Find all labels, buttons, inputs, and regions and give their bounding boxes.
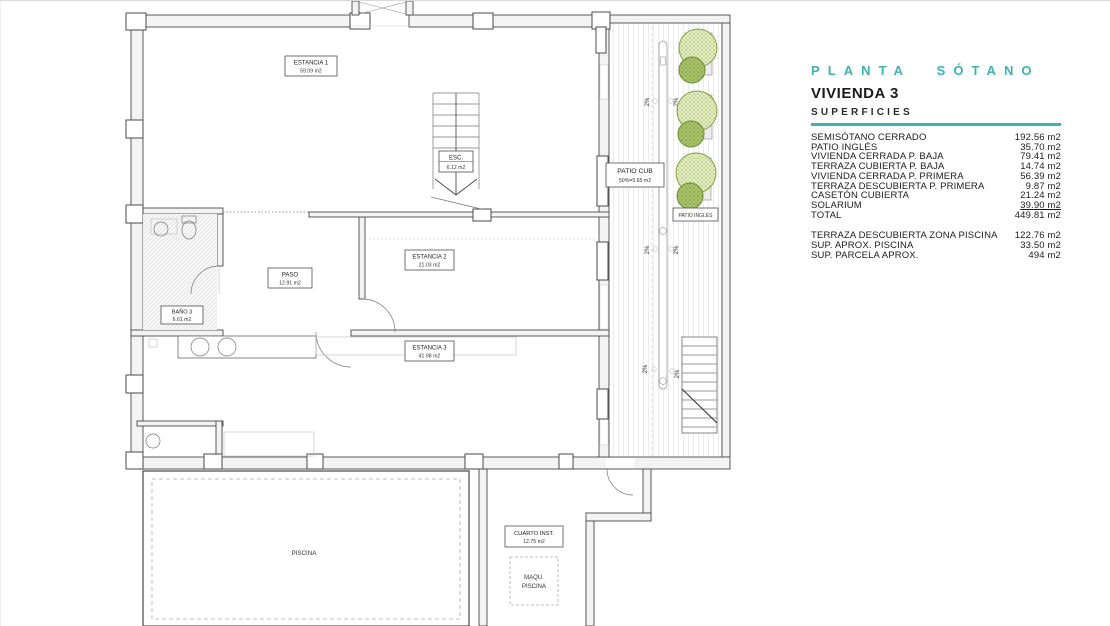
room-label-estancia3: ESTANCIA 3 (412, 346, 447, 352)
drain-icon (146, 434, 160, 448)
slope-label: 2% (643, 364, 649, 373)
slope-label: 2% (675, 369, 681, 378)
room-label-estancia2: ESTANCIA 2 (412, 255, 447, 261)
room-area-esc: 6.12 m2 (447, 165, 466, 171)
room-label-piscina: PISCINA (292, 550, 318, 557)
area-label: TOTAL (811, 211, 1015, 221)
room-area-estancia2: 21.03 m2 (419, 263, 441, 269)
pool-plant-room: CUARTO INST. 12.75 m2 MAQU. PISCINA (479, 469, 651, 626)
room-area-patio-cub: 50%=5.65 m2 (619, 178, 651, 184)
terrace-stairs (682, 337, 717, 433)
patio-ingles-terrace: 2% 2% 2% 2% 2% 2% (609, 23, 720, 457)
room-label-paso: PASO (282, 273, 299, 279)
summary-panel: PLANTA SÓTANO VIVIENDA 3 SUPERFICIES SEM… (811, 63, 1061, 260)
room-area-bano3: 6.61 m2 (173, 317, 192, 323)
accent-rule (811, 123, 1061, 126)
room-label-estancia1: ESTANCIA 1 (294, 61, 329, 67)
area-row-total: TOTAL449.81 m2 (811, 211, 1061, 221)
room-label-bano3: BAÑO 3 (172, 309, 193, 316)
counter (146, 336, 516, 456)
unit-title: VIVIENDA 3 (811, 85, 1061, 102)
superficies-heading: SUPERFICIES (811, 107, 1061, 118)
room-label-esc: ESC. (449, 156, 463, 162)
area-value: 449.81 m2 (1015, 211, 1061, 221)
label-maqu-piscina: PISCINA (522, 584, 546, 590)
slope-label: 2% (674, 245, 680, 254)
area-label: SUP. PARCELA APROX. (811, 251, 1028, 261)
floor-plan-page: .w{fill:#f3f3f3;stroke:#4a4a4a;stroke-wi… (0, 0, 1110, 626)
door-arc (607, 469, 633, 495)
drain-channel (659, 41, 667, 389)
plan-title: PLANTA SÓTANO (811, 63, 1061, 78)
room-area-estancia1: 59.09 m2 (300, 69, 322, 75)
room-area-cuarto-inst: 12.75 m2 (523, 539, 545, 545)
room-label-patio-cub: PATIO CUB (617, 168, 653, 175)
room-label-patio-ingles: PATIO INGLÉS (679, 212, 714, 219)
pool-area: PISCINA (143, 471, 469, 626)
pool-machinery-box (510, 557, 558, 605)
area-value: 494 m2 (1028, 251, 1061, 261)
room-area-paso: 12.91 m2 (279, 281, 301, 287)
tree-icon (679, 29, 717, 83)
area-label: SOLARIUM (811, 201, 1020, 211)
tree-icon (677, 91, 717, 147)
door-arc (362, 299, 395, 332)
room-label-cuarto-inst: CUARTO INST. (514, 531, 554, 537)
area-row: SUP. PARCELA APROX.494 m2 (811, 251, 1061, 261)
label-maqu: MAQU. (524, 575, 544, 581)
room-area-estancia3: 41.98 m2 (419, 354, 441, 360)
slope-label: 2% (645, 245, 651, 254)
slope-label: 2% (645, 97, 651, 106)
areas-table: SEMISÓTANO CERRADO192.56 m2 PATIO INGLÉS… (811, 133, 1061, 260)
